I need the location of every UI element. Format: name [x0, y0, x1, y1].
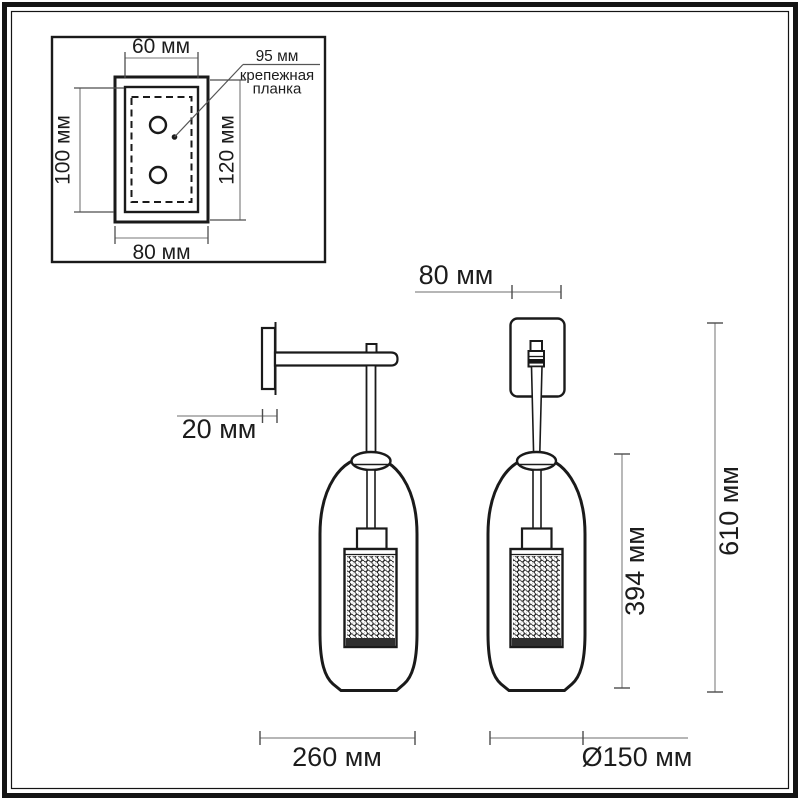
- inset-width-bottom-label: 80 мм: [132, 241, 190, 264]
- front-collar-band: [529, 359, 545, 364]
- side-glass-top-disc: [352, 452, 391, 470]
- shade-height-label: 394 мм: [620, 526, 650, 616]
- side-inner-rod: [367, 470, 375, 529]
- front-glass-top-disc: [517, 452, 556, 470]
- overall-height-label: 610 мм: [714, 466, 744, 556]
- sconce-front-view: [488, 319, 585, 691]
- side-socket: [357, 529, 387, 550]
- projection-label: 260 мм: [292, 742, 382, 772]
- front-socket: [522, 529, 552, 550]
- front-inner-rod: [533, 470, 541, 529]
- inset-height-outer-label: 120 мм: [216, 115, 239, 185]
- backplate-width-label: 80 мм: [419, 260, 494, 290]
- side-arm-knob: [367, 344, 377, 353]
- inset-height-inner-label: 100 мм: [52, 115, 75, 185]
- technical-drawing-page: 95 мм крепежная планка 60 мм 100 мм 120 …: [0, 0, 800, 800]
- front-bracket-collar: [529, 351, 545, 367]
- front-mesh-diffuser: [511, 549, 563, 647]
- side-mesh-diffuser: [345, 549, 397, 647]
- front-stem: [532, 367, 543, 454]
- sconce-dimension-diagram: 95 мм крепежная планка 60 мм 100 мм 120 …: [0, 0, 800, 800]
- inset-callout-line2: планка: [253, 81, 302, 98]
- inset-width-top-label: 60 мм: [132, 35, 190, 58]
- backplate-depth-label: 20 мм: [182, 414, 257, 444]
- side-arm: [275, 353, 398, 366]
- sconce-side-view: [262, 322, 417, 691]
- side-backplate: [262, 328, 275, 389]
- mounting-plate-inset: 95 мм крепежная планка 60 мм 100 мм 120 …: [52, 35, 325, 264]
- side-stem: [367, 366, 376, 456]
- shade-diameter-label: Ø150 мм: [582, 742, 693, 772]
- inset-holes-distance-label: 95 мм: [256, 48, 299, 65]
- front-bracket-cap: [531, 341, 543, 352]
